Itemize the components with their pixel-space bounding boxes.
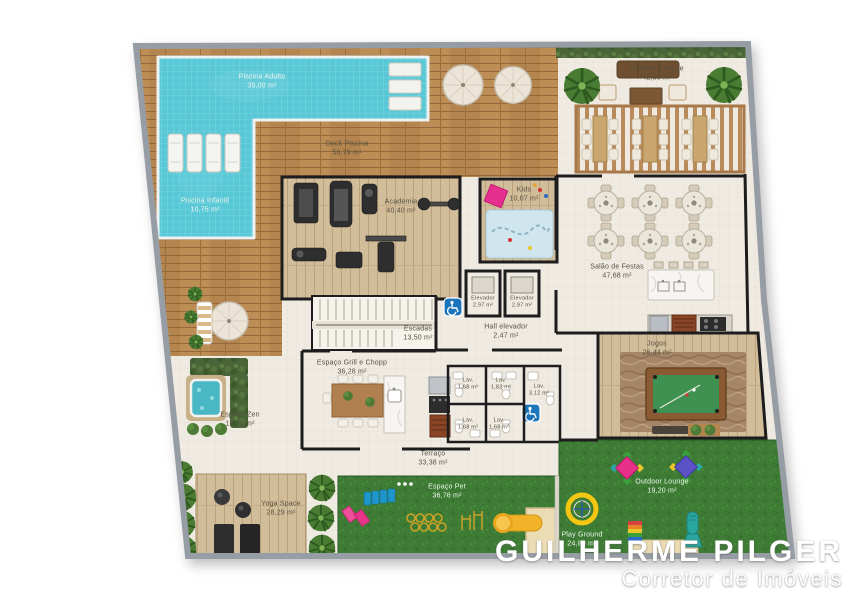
bench bbox=[652, 426, 690, 434]
pergola bbox=[576, 106, 744, 172]
in-pool-loungers bbox=[389, 63, 421, 110]
yoga-mat bbox=[214, 524, 234, 554]
games-room bbox=[598, 333, 766, 438]
wheelchair-icon bbox=[444, 298, 462, 316]
palm-tree-icon bbox=[706, 67, 742, 103]
watermark: GUILHERME PILGER Corretor de Imóveis bbox=[495, 535, 843, 592]
umbrella-icon bbox=[443, 65, 483, 105]
outdoor-lounge-top-area bbox=[556, 44, 748, 104]
kids-room bbox=[480, 179, 557, 262]
yoga-space-area bbox=[196, 474, 306, 556]
cooktop bbox=[700, 317, 726, 331]
watermark-title: Corretor de Imóveis bbox=[495, 566, 843, 592]
sofa bbox=[617, 61, 679, 78]
jacuzzi bbox=[191, 380, 221, 416]
party-room-counter bbox=[648, 315, 732, 333]
trampoline bbox=[568, 495, 596, 523]
zen-space bbox=[186, 358, 248, 437]
floor-plan: Piscina Adulto39,00 m² Piscina Infantil1… bbox=[0, 0, 849, 600]
yoga-mat bbox=[240, 524, 260, 554]
floor-plan-graphics bbox=[0, 0, 849, 600]
coffee-table bbox=[630, 88, 662, 104]
watermark-name: GUILHERME PILGER bbox=[495, 535, 843, 569]
armchair bbox=[599, 85, 616, 100]
armchair bbox=[669, 85, 686, 100]
palm-tree-icon bbox=[564, 68, 600, 104]
umbrella-icon bbox=[495, 67, 532, 104]
grill bbox=[672, 315, 696, 333]
fridge bbox=[650, 316, 668, 332]
stairs bbox=[312, 296, 436, 350]
dining-table bbox=[332, 384, 383, 417]
gym-room bbox=[282, 177, 460, 299]
counter-island bbox=[384, 376, 405, 433]
